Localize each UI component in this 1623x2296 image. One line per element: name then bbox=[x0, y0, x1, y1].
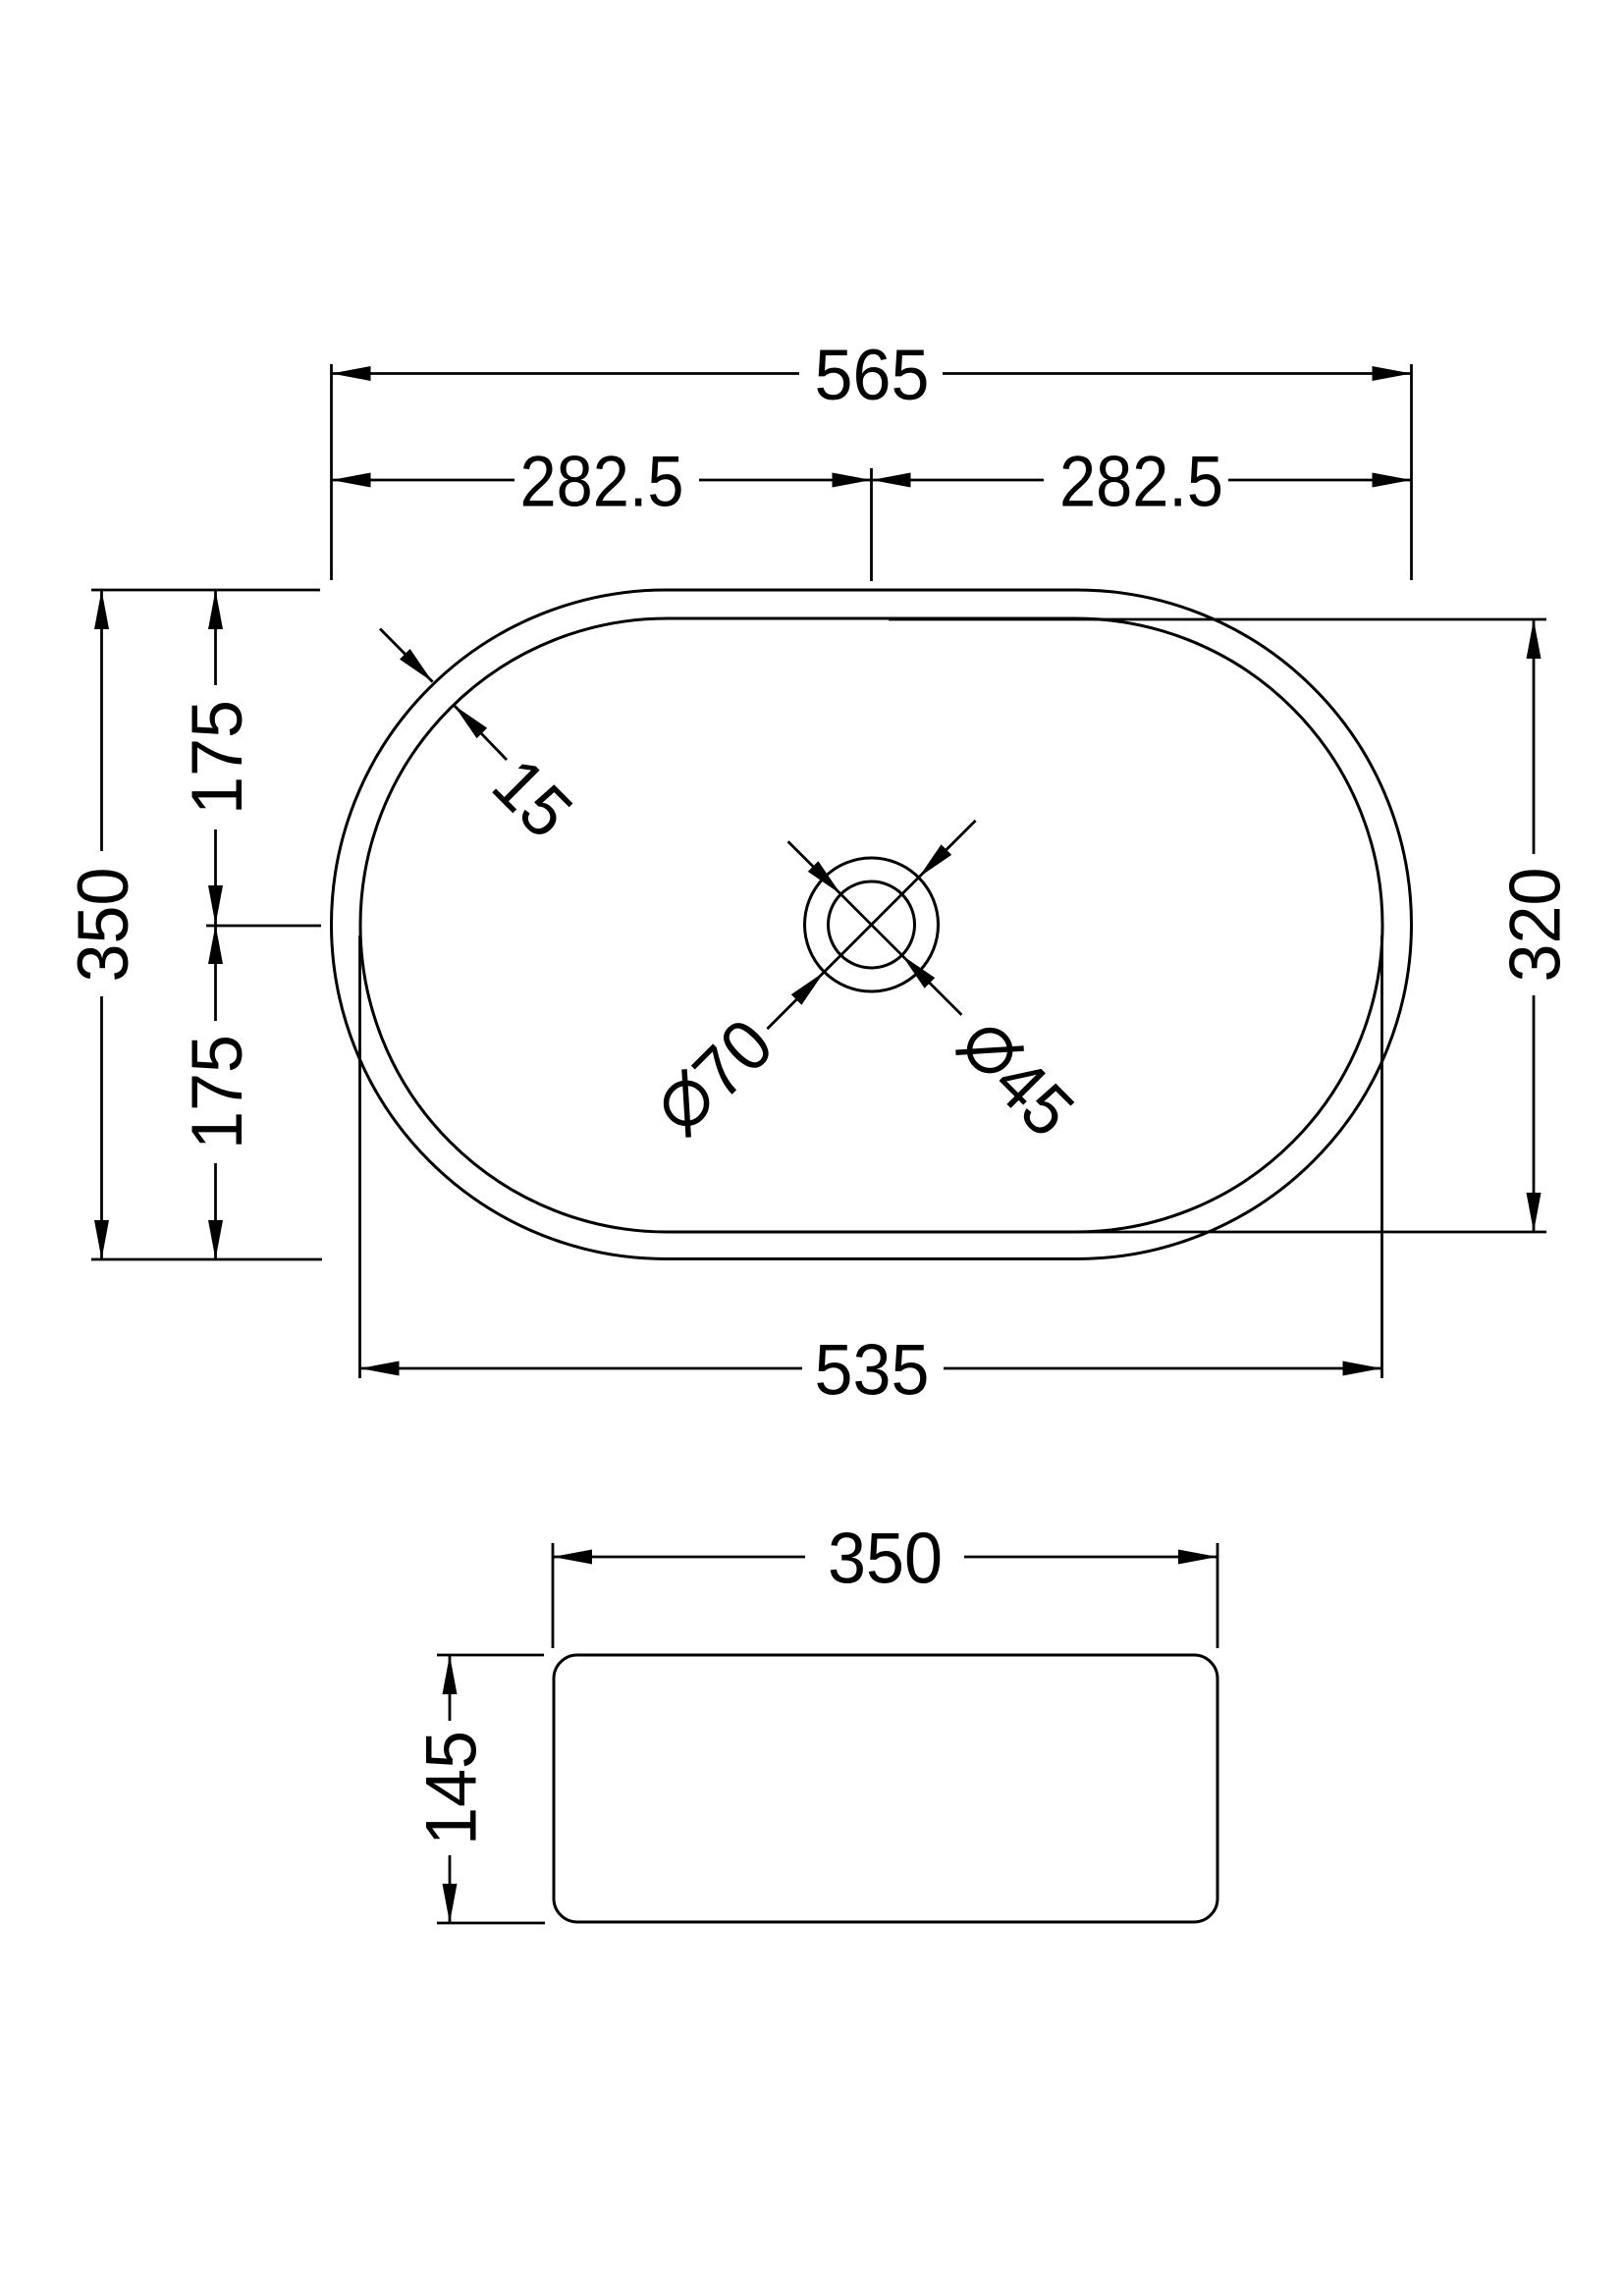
svg-text:282.5: 282.5 bbox=[520, 443, 684, 522]
svg-text:45: 45 bbox=[979, 1042, 1089, 1152]
svg-text:320: 320 bbox=[1496, 868, 1576, 983]
svg-text:350: 350 bbox=[64, 868, 143, 983]
svg-text:175: 175 bbox=[178, 700, 257, 815]
svg-text:565: 565 bbox=[815, 336, 930, 415]
svg-text:145: 145 bbox=[412, 1731, 492, 1845]
svg-text:535: 535 bbox=[815, 1331, 930, 1411]
svg-text:70: 70 bbox=[678, 1004, 788, 1114]
svg-text:282.5: 282.5 bbox=[1059, 443, 1223, 522]
svg-text:15: 15 bbox=[477, 744, 587, 854]
svg-text:350: 350 bbox=[828, 1520, 943, 1599]
svg-text:175: 175 bbox=[178, 1035, 257, 1149]
